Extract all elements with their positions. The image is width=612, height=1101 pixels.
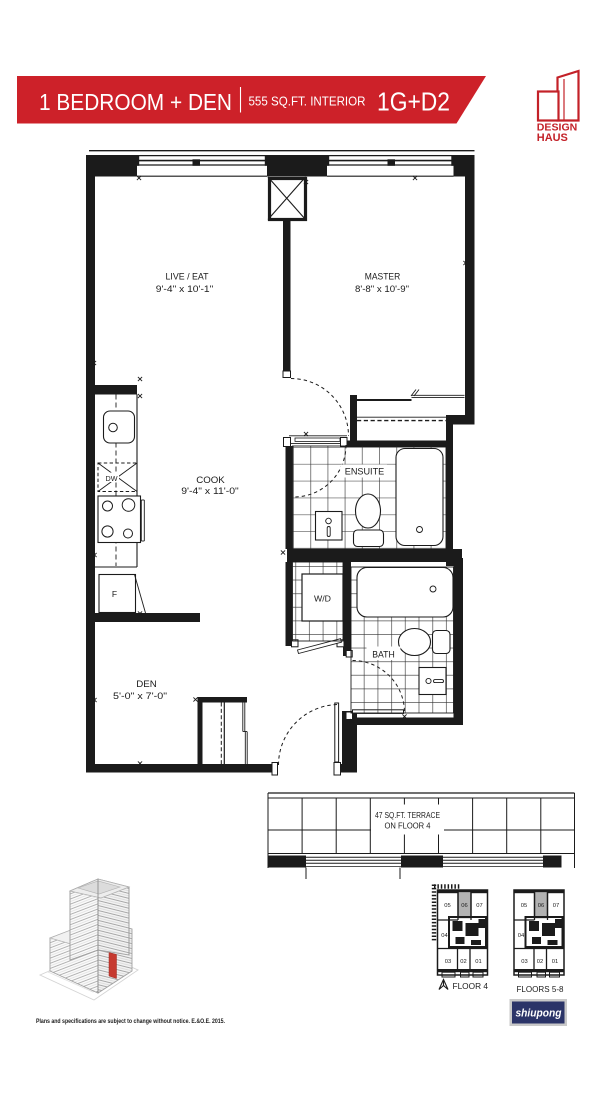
svg-text:02: 02 (537, 959, 543, 965)
svg-text:1 BEDROOM + DEN: 1 BEDROOM + DEN (39, 89, 232, 115)
svg-text:FLOOR 4: FLOOR 4 (453, 981, 489, 991)
svg-text:FLOORS 5-8: FLOORS 5-8 (517, 984, 564, 994)
svg-text:ENSUITE: ENSUITE (345, 467, 385, 477)
svg-text:05: 05 (521, 903, 527, 909)
svg-text:BATH: BATH (372, 650, 395, 660)
svg-text:F: F (112, 589, 117, 599)
svg-text:01: 01 (475, 959, 481, 965)
svg-text:03: 03 (521, 959, 527, 965)
svg-text:555 SQ.FT. INTERIOR: 555 SQ.FT. INTERIOR (249, 94, 366, 109)
svg-text:07: 07 (476, 903, 482, 909)
svg-text:03: 03 (445, 959, 451, 965)
svg-text:04: 04 (518, 933, 525, 939)
svg-text:02: 02 (460, 959, 466, 965)
svg-text:LIVE / EAT: LIVE / EAT (166, 271, 209, 282)
svg-text:9'-4" x 11'-0": 9'-4" x 11'-0" (181, 485, 239, 496)
svg-text:MASTER: MASTER (365, 271, 401, 282)
svg-text:04: 04 (441, 933, 448, 939)
svg-text:shiupong: shiupong (516, 1008, 562, 1020)
svg-text:5'-0" x 7'-0": 5'-0" x 7'-0" (113, 690, 167, 701)
svg-text:COOK: COOK (196, 474, 225, 485)
svg-text:DW: DW (106, 474, 118, 483)
svg-text:Plans and specifications are s: Plans and specifications are subject to … (36, 1018, 225, 1025)
svg-text:ON FLOOR 4: ON FLOOR 4 (385, 822, 432, 831)
svg-text:01: 01 (552, 959, 558, 965)
svg-text:06: 06 (538, 903, 544, 909)
svg-text:1G+D2: 1G+D2 (377, 87, 450, 117)
svg-text:47 SQ.FT. TERRACE: 47 SQ.FT. TERRACE (375, 811, 440, 820)
svg-text:9'-4" x 10'-1": 9'-4" x 10'-1" (156, 283, 214, 294)
svg-text:HAUS: HAUS (537, 132, 568, 144)
svg-text:8'-8" x 10'-9": 8'-8" x 10'-9" (355, 283, 409, 294)
svg-text:05: 05 (444, 903, 450, 909)
svg-text:06: 06 (461, 903, 467, 909)
svg-text:W/D: W/D (314, 594, 331, 604)
svg-text:07: 07 (553, 903, 559, 909)
svg-text:DEN: DEN (136, 678, 157, 689)
